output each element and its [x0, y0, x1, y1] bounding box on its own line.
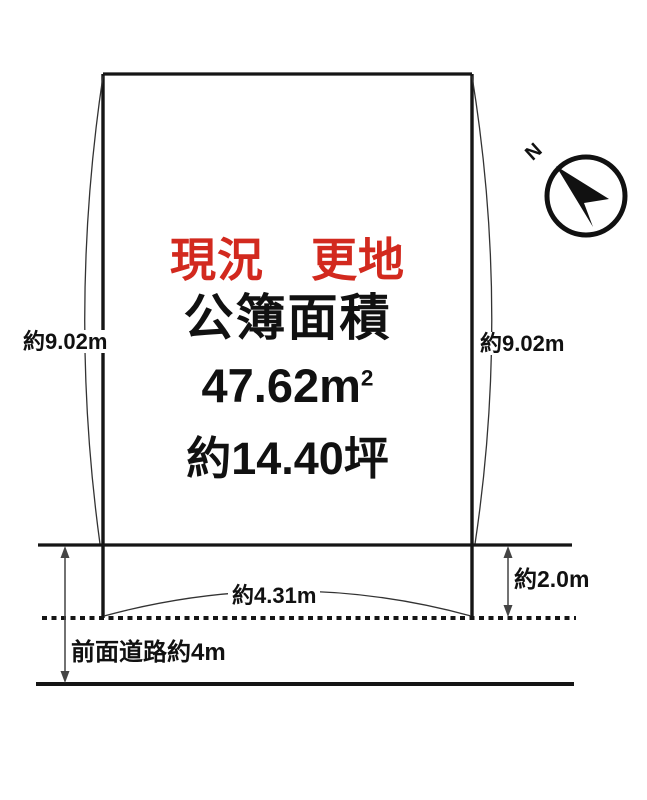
land-plot-diagram: 現況 更地 公簿面積 47.62m2 約14.40坪 約9.02m 約9.02m…: [0, 0, 647, 800]
right-side-length-label: 約9.02m: [478, 332, 566, 355]
setback-arrow: [504, 546, 513, 617]
right-boundary-curve: [472, 76, 492, 544]
front-road-label: 前面道路約4m: [71, 640, 226, 665]
left-side-length-label: 約9.02m: [21, 330, 109, 353]
area-sqm-value: 47.62m: [202, 359, 361, 412]
setback-depth-label: 約2.0m: [514, 567, 589, 591]
plot-outline: [103, 74, 472, 618]
area-sqm-superscript: 2: [361, 365, 374, 390]
registered-area-title: 公簿面積: [103, 292, 472, 345]
area-tsubo: 約14.40坪: [103, 435, 472, 482]
north-needle-icon: [556, 166, 609, 227]
road-width-arrow: [61, 546, 70, 683]
compass: [547, 157, 625, 235]
area-square-meters: 47.62m2: [103, 361, 472, 410]
left-boundary-curve: [85, 76, 103, 544]
frontage-length-label: 約4.31m: [228, 584, 320, 607]
status-label: 現況 更地: [103, 236, 472, 284]
